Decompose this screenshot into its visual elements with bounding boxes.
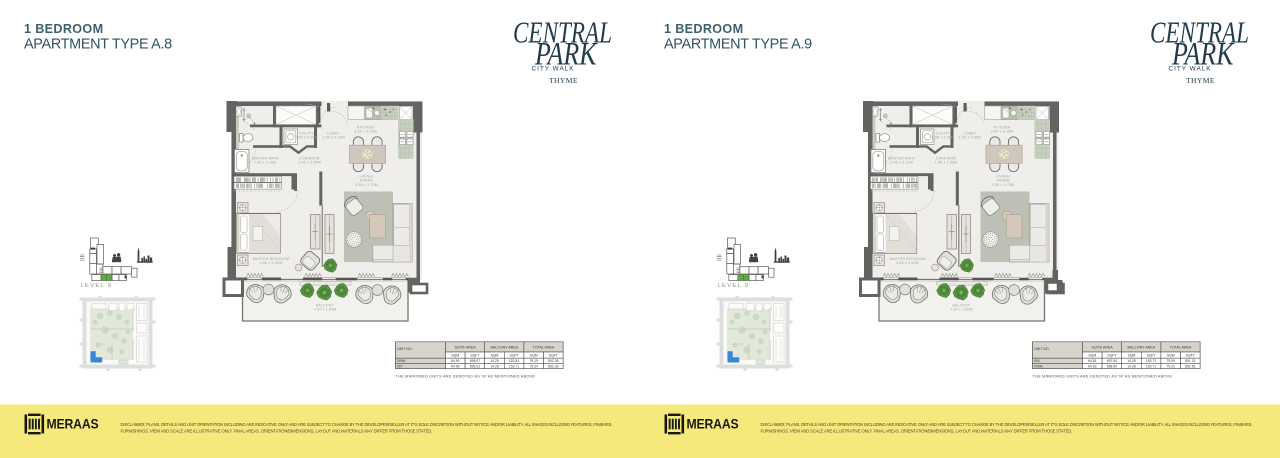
svg-text:THE MIRRORED UNITS ARE DENOTED: THE MIRRORED UNITS ARE DENOTED AS ‘M’ AS… — [1033, 374, 1173, 379]
svg-text:SQM: SQM — [1088, 353, 1096, 357]
svg-text:64.96: 64.96 — [451, 364, 460, 368]
svg-text:MASTER BATH2.05 x 3.10M: MASTER BATH2.05 x 3.10M — [888, 157, 915, 165]
svg-text:1 BEDROOM: 1 BEDROOM — [24, 22, 103, 36]
svg-text:852.93: 852.93 — [548, 364, 558, 368]
svg-text:14.29: 14.29 — [490, 359, 499, 363]
svg-text:852.38: 852.38 — [548, 359, 558, 363]
svg-text:MERAAS: MERAAS — [687, 416, 739, 432]
svg-text:LEVEL 9: LEVEL 9 — [718, 283, 750, 289]
svg-text:907: 907 — [397, 364, 403, 368]
svg-text:UNIT NO.: UNIT NO. — [1034, 347, 1050, 351]
svg-text:TOTAL AREA: TOTAL AREA — [1170, 346, 1192, 350]
svg-text:SUITE AREA: SUITE AREA — [455, 346, 477, 350]
svg-text:CORRIDOR1.95 x 1.55M: CORRIDOR1.95 x 1.55M — [298, 157, 321, 165]
svg-text:SQM: SQM — [530, 353, 538, 357]
svg-text:DISCLAIMER: PLANS, DETAILS AND: DISCLAIMER: PLANS, DETAILS AND UNIT ORIE… — [121, 422, 613, 427]
svg-text:698.90: 698.90 — [1107, 364, 1117, 368]
svg-text:SQM: SQM — [451, 353, 459, 357]
svg-text:BALCONY AREA: BALCONY AREA — [490, 346, 518, 350]
svg-text:SQFT: SQFT — [1107, 353, 1116, 357]
svg-text:64.93: 64.93 — [1088, 364, 1097, 368]
svg-text:APARTMENT TYPE A.9: APARTMENT TYPE A.9 — [664, 36, 812, 52]
svg-text:CITY WALK: CITY WALK — [532, 66, 575, 73]
svg-text:THYME: THYME — [549, 76, 578, 85]
svg-text:LEVEL 9: LEVEL 9 — [81, 283, 113, 289]
svg-text:79.19: 79.19 — [529, 359, 538, 363]
svg-text:699.22: 699.22 — [470, 364, 480, 368]
svg-text:153.81: 153.81 — [509, 359, 519, 363]
svg-text:14.28: 14.28 — [1127, 359, 1136, 363]
svg-text:79.09: 79.09 — [1166, 359, 1175, 363]
svg-text:79.21: 79.21 — [1166, 364, 1175, 368]
svg-text:64.90: 64.90 — [451, 359, 460, 363]
svg-text:THYME: THYME — [1186, 76, 1215, 85]
svg-text:BALCONY7.50 x 1.80M: BALCONY7.50 x 1.80M — [950, 304, 973, 312]
svg-text:153.71: 153.71 — [1146, 359, 1156, 363]
svg-text:697.60: 697.60 — [1107, 359, 1117, 363]
svg-text:SQFT: SQFT — [470, 353, 479, 357]
svg-text:852.61: 852.61 — [1185, 364, 1195, 368]
svg-text:904: 904 — [1034, 359, 1040, 363]
svg-text:SQFT: SQFT — [1186, 353, 1195, 357]
svg-text:TOTAL AREA: TOTAL AREA — [533, 346, 555, 350]
svg-text:909M: 909M — [397, 359, 406, 363]
svg-text:BALCONY AREA: BALCONY AREA — [1127, 346, 1155, 350]
svg-text:SQFT: SQFT — [510, 353, 519, 357]
svg-text:MASTER BATH2.05 x 3.10M: MASTER BATH2.05 x 3.10M — [252, 157, 279, 165]
svg-text:DISCLAIMER: PLANS, DETAILS AND: DISCLAIMER: PLANS, DETAILS AND UNIT ORIE… — [761, 422, 1253, 427]
svg-text:153.71: 153.71 — [1146, 364, 1156, 368]
svg-text:14.28: 14.28 — [1127, 364, 1136, 368]
svg-text:698.57: 698.57 — [470, 359, 480, 363]
svg-text:SQM: SQM — [1167, 353, 1175, 357]
svg-text:THE MIRRORED UNITS ARE DENOTED: THE MIRRORED UNITS ARE DENOTED AS ‘M’ AS… — [396, 374, 536, 379]
svg-text:UNIT NO.: UNIT NO. — [397, 347, 413, 351]
svg-text:153.71: 153.71 — [509, 364, 519, 368]
svg-text:CITY WALK: CITY WALK — [1169, 66, 1212, 73]
svg-text:79.24: 79.24 — [529, 364, 538, 368]
svg-text:SQFT: SQFT — [1147, 353, 1156, 357]
svg-text:BALCONY7.50 x 1.80M: BALCONY7.50 x 1.80M — [314, 304, 337, 312]
svg-text:MERAAS: MERAAS — [47, 416, 99, 432]
svg-text:SQM: SQM — [1128, 353, 1136, 357]
svg-text:FURNISHINGS, VIEW AND SCALE AR: FURNISHINGS, VIEW AND SCALE ARE ILLUSTRA… — [121, 428, 433, 433]
svg-text:64.81: 64.81 — [1088, 359, 1097, 363]
svg-text:SQM: SQM — [491, 353, 499, 357]
svg-text:1 BEDROOM: 1 BEDROOM — [664, 22, 743, 36]
svg-text:851.31: 851.31 — [1185, 359, 1195, 363]
svg-text:CORRIDOR1.95 x 1.55M: CORRIDOR1.95 x 1.55M — [935, 157, 958, 165]
svg-text:14.28: 14.28 — [490, 364, 499, 368]
svg-text:KITCHEN3.95 x 3.15M: KITCHEN3.95 x 3.15M — [354, 126, 377, 134]
svg-text:FURNISHINGS, VIEW AND SCALE AR: FURNISHINGS, VIEW AND SCALE ARE ILLUSTRA… — [761, 428, 1073, 433]
svg-text:KITCHEN3.95 x 3.15M: KITCHEN3.95 x 3.15M — [991, 126, 1014, 134]
svg-text:SUITE AREA: SUITE AREA — [1092, 346, 1114, 350]
svg-text:905M: 905M — [1034, 364, 1043, 368]
svg-text:SQFT: SQFT — [549, 353, 558, 357]
svg-text:APARTMENT TYPE A.8: APARTMENT TYPE A.8 — [24, 36, 172, 52]
